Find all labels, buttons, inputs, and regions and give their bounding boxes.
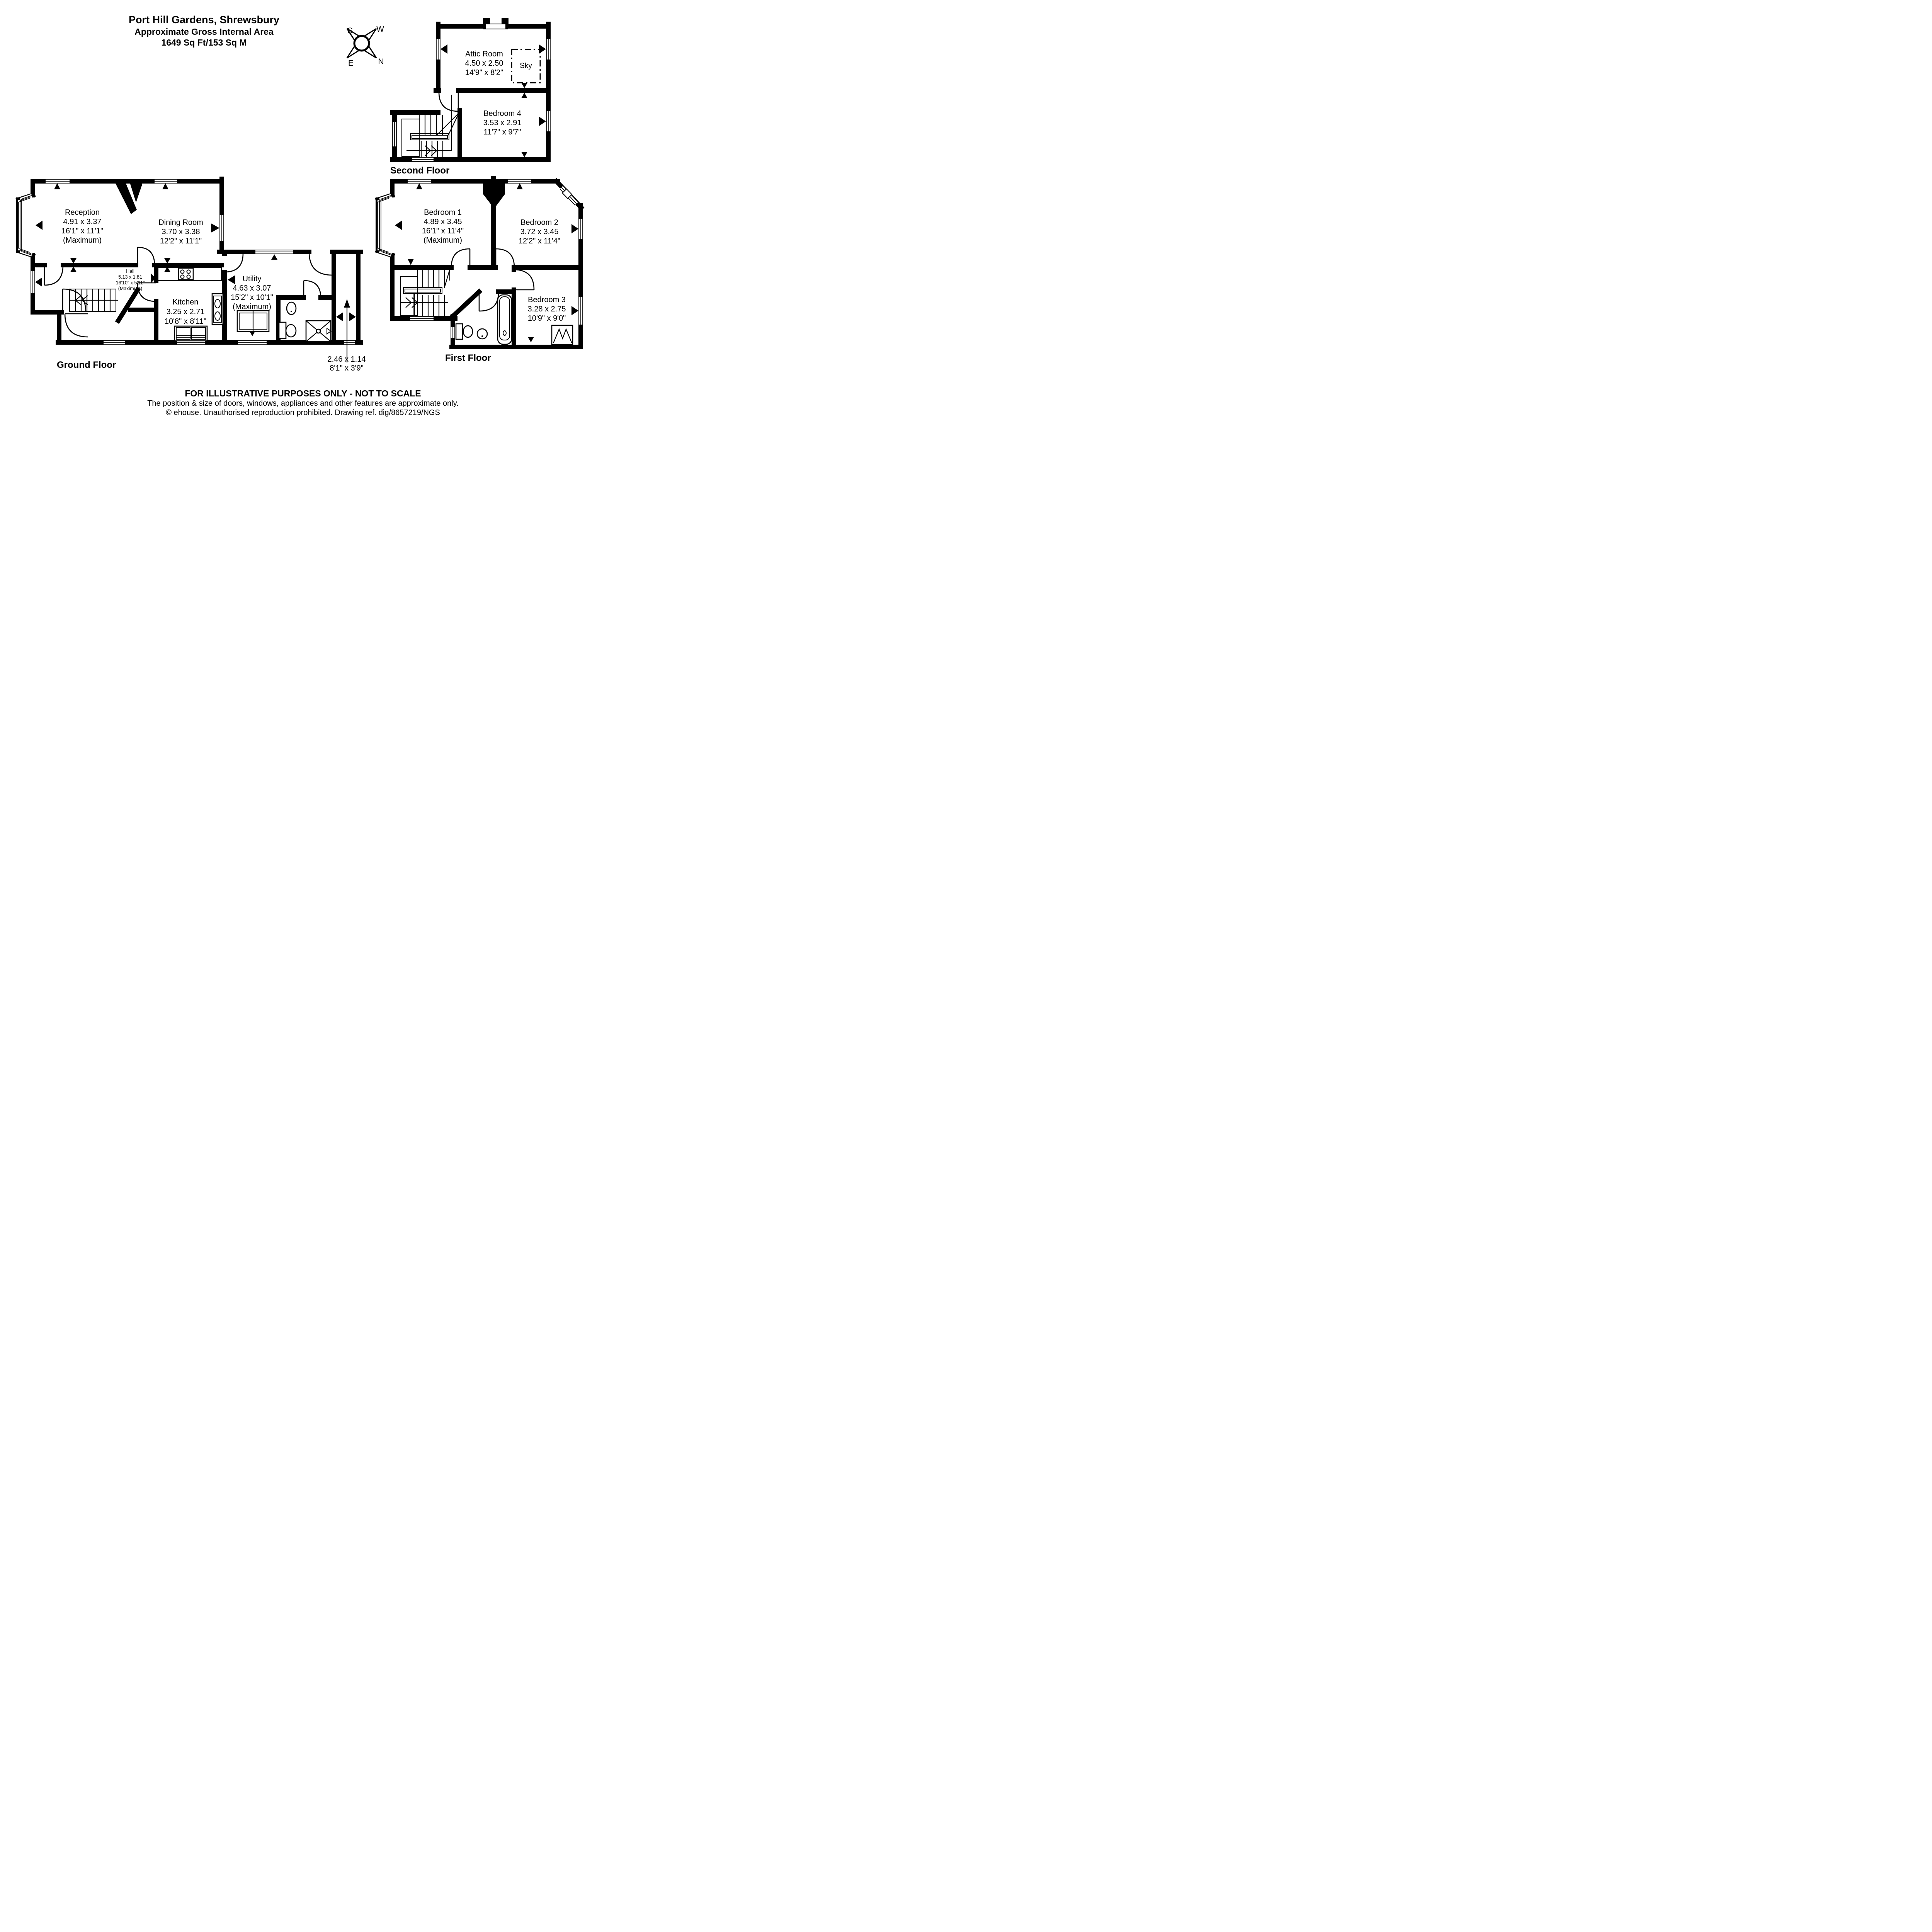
toilet-cistern: [279, 322, 286, 338]
bathroom-door: [479, 293, 498, 311]
window-marker-bottom-icon: [528, 337, 534, 342]
attic-door: [439, 92, 458, 111]
stair-handrail: [410, 134, 449, 140]
footer-note: The position & size of doors, windows, a…: [147, 399, 459, 408]
footer-copyright: © ehouse. Unauthorised reproduction proh…: [166, 408, 440, 417]
opening-marker-icon: [70, 258, 77, 264]
room-metric: 3.70 x 3.38: [162, 228, 200, 236]
toilet-bowl-icon: [286, 325, 296, 337]
floorplan-page: Port Hill Gardens, Shrewsbury Approximat…: [0, 0, 606, 428]
page-subtitle: Approximate Gross Internal Area: [134, 27, 274, 37]
room-note: (Maximum): [118, 286, 143, 291]
room-metric: 3.72 x 3.45: [520, 228, 559, 236]
stair-handrail-inner: [405, 289, 440, 292]
bedroom2-door: [496, 249, 514, 267]
room-name: Bedroom 3: [528, 296, 566, 304]
cabinet: [552, 325, 573, 345]
room-metric: 5.13 x 1.81: [118, 274, 142, 280]
window-marker-bay-icon: [36, 221, 43, 230]
room-name: Utility: [243, 275, 262, 283]
utility-door: [224, 253, 243, 272]
title-block: Port Hill Gardens, Shrewsbury Approximat…: [129, 14, 279, 48]
door-marker-icon: [228, 275, 235, 284]
second-floor-walls: [392, 24, 548, 160]
dining-door: [138, 247, 155, 265]
window-marker-right-icon: [571, 306, 578, 315]
footer-block: FOR ILLUSTRATIVE PURPOSES ONLY - NOT TO …: [147, 388, 459, 417]
room-note: (Maximum): [423, 236, 462, 245]
room-metric: 4.50 x 2.50: [465, 59, 503, 68]
window-marker-right-icon: [539, 117, 546, 126]
window-marker-top-icon: [416, 183, 422, 189]
second-floor-plan: Sky Attic Room 4.50 x 2.50 14'9" x 8'2" …: [390, 18, 550, 176]
window-marker-right-icon: [211, 223, 219, 233]
room-imperial: 15'2" x 10'1": [231, 293, 273, 302]
ground-floor-label: Ground Floor: [57, 360, 116, 370]
first-floor-label: First Floor: [445, 353, 491, 363]
page-area: 1649 Sq Ft/153 Sq M: [161, 37, 247, 48]
compass-label-e: E: [348, 59, 354, 68]
shower-room-door: [304, 281, 321, 298]
passage-imperial: 8'1" x 3'9": [330, 364, 363, 372]
compass-label-n: N: [378, 57, 384, 66]
room-metric: 3.53 x 2.91: [483, 119, 522, 127]
hob: [179, 268, 193, 280]
room-imperial: 11'7" x 9'7": [483, 128, 521, 136]
room-name: Bedroom 1: [424, 208, 462, 217]
room-name: Bedroom 4: [483, 109, 521, 118]
compass-label-w: W: [376, 25, 384, 34]
room-imperial: 10'9" x 9'0": [528, 314, 566, 323]
passage-marker-icon: [336, 312, 343, 321]
second-floor-label: Second Floor: [390, 165, 449, 176]
room-metric: 3.25 x 2.71: [167, 308, 205, 316]
room-imperial: 16'1" x 11'1": [61, 227, 103, 235]
window-marker-right-icon: [571, 224, 578, 233]
room-imperial: 12'2" x 11'4": [519, 237, 560, 245]
room-bedroom2: Bedroom 2 3.72 x 3.45 12'2" x 11'4": [519, 218, 560, 245]
page-title: Port Hill Gardens, Shrewsbury: [129, 14, 279, 26]
compass-rose: S W E N: [347, 25, 384, 68]
room-name: Hall: [126, 269, 134, 274]
floorplan-drawing: Port Hill Gardens, Shrewsbury Approximat…: [0, 0, 606, 428]
room-metric: 4.63 x 3.07: [233, 284, 271, 293]
toilet-cistern: [456, 324, 463, 339]
compass-circle: [354, 36, 369, 51]
room-bedroom1: Bedroom 1 4.89 x 3.45 16'1" x 11'4" (Max…: [422, 208, 464, 245]
utility-fixtures: [237, 311, 269, 332]
room-metric: 4.89 x 3.45: [424, 218, 462, 226]
passage-arrow-head-icon: [344, 299, 350, 308]
toilet-bowl-icon: [463, 326, 473, 337]
rear-door: [309, 252, 332, 275]
room-kitchen: Kitchen 3.25 x 2.71 10'8" x 8'11": [165, 298, 206, 326]
room-note: (Maximum): [233, 303, 271, 311]
basin-drain-icon: [481, 335, 483, 337]
front-door: [65, 314, 88, 337]
opening-marker-icon: [164, 258, 170, 264]
window-marker-left-icon: [440, 44, 447, 54]
room-metric: 4.91 x 3.37: [63, 218, 102, 226]
stair-handrail: [403, 287, 442, 294]
compass-label-s: S: [347, 26, 353, 35]
bedroom3-cabinet: [552, 325, 573, 345]
opening-marker-icon: [70, 267, 77, 272]
room-dining: Dining Room 3.70 x 3.38 12'2" x 11'1": [158, 218, 203, 245]
chimney-breast: [483, 179, 505, 209]
room-metric: 3.28 x 2.75: [528, 305, 566, 313]
room-bedroom3: Bedroom 3 3.28 x 2.75 10'9" x 9'0": [528, 296, 566, 323]
basin-drain-icon: [291, 311, 292, 312]
bathroom-fixtures: [456, 295, 512, 344]
ground-floor-plan: Reception 4.91 x 3.37 16'1" x 11'1" (Max…: [19, 179, 366, 372]
skylight-label: Sky: [520, 62, 532, 70]
base-unit: [175, 326, 207, 341]
room-name: Attic Room: [465, 50, 503, 58]
room-name: Reception: [65, 208, 100, 217]
bay-window-gap: [380, 196, 391, 254]
room-reception: Reception 4.91 x 3.37 16'1" x 11'1" (Max…: [61, 208, 103, 245]
room-imperial: 16'1" x 11'4": [422, 227, 464, 235]
room-note: (Maximum): [63, 236, 102, 245]
opening-marker-icon: [521, 83, 527, 88]
room-imperial: 16'10" x 5'11": [116, 280, 145, 286]
basin-icon: [287, 302, 296, 315]
window-marker-bay-icon: [395, 221, 402, 230]
bedroom1-door: [451, 249, 470, 267]
basin-icon: [477, 329, 487, 339]
room-imperial: 10'8" x 8'11": [165, 317, 206, 326]
window-marker-top-icon: [54, 183, 60, 189]
window-marker-top-icon: [517, 183, 523, 189]
footer-disclaimer: FOR ILLUSTRATIVE PURPOSES ONLY - NOT TO …: [185, 388, 421, 398]
passage-metric: 2.46 x 1.14: [328, 355, 366, 364]
room-bedroom4: Bedroom 4 3.53 x 2.91 11'7" x 9'7": [483, 109, 522, 136]
stair-head-marker-icon: [408, 259, 414, 265]
bedroom3-door: [514, 270, 534, 290]
window-marker-left-icon: [35, 277, 42, 287]
room-imperial: 14'9" x 8'2": [465, 68, 503, 77]
bay-window-gap: [20, 196, 32, 254]
room-name: Kitchen: [173, 298, 199, 306]
opening-marker-icon: [521, 93, 527, 98]
first-floor-stairs: [400, 269, 450, 316]
room-name: Bedroom 2: [520, 218, 558, 227]
window-marker-top-icon: [162, 183, 168, 189]
stair-handrail-inner: [412, 135, 447, 138]
window-marker-bottom-icon: [521, 152, 527, 157]
first-floor-plan: Bedroom 1 4.89 x 3.45 16'1" x 11'4" (Max…: [378, 179, 583, 363]
room-hall: Hall 5.13 x 1.81 16'10" x 5'11" (Maximum…: [116, 269, 145, 291]
room-attic: Attic Room 4.50 x 2.50 14'9" x 8'2": [465, 50, 503, 77]
passage-dimensions: 2.46 x 1.14 8'1" x 3'9": [328, 355, 366, 372]
second-floor-stairs: [402, 95, 459, 157]
passage-marker-icon: [349, 312, 356, 321]
chimney-recess: [484, 24, 508, 29]
window-marker-top-icon: [271, 254, 277, 260]
room-imperial: 12'2" x 11'1": [160, 237, 202, 245]
reception-door: [44, 265, 63, 285]
room-utility: Utility 4.63 x 3.07 15'2" x 10'1" (Maxim…: [231, 275, 273, 311]
stair-treads: [406, 95, 459, 157]
room-name: Dining Room: [158, 218, 203, 227]
shower-room-fixtures: [279, 302, 331, 342]
shower-drain-icon: [316, 329, 320, 333]
